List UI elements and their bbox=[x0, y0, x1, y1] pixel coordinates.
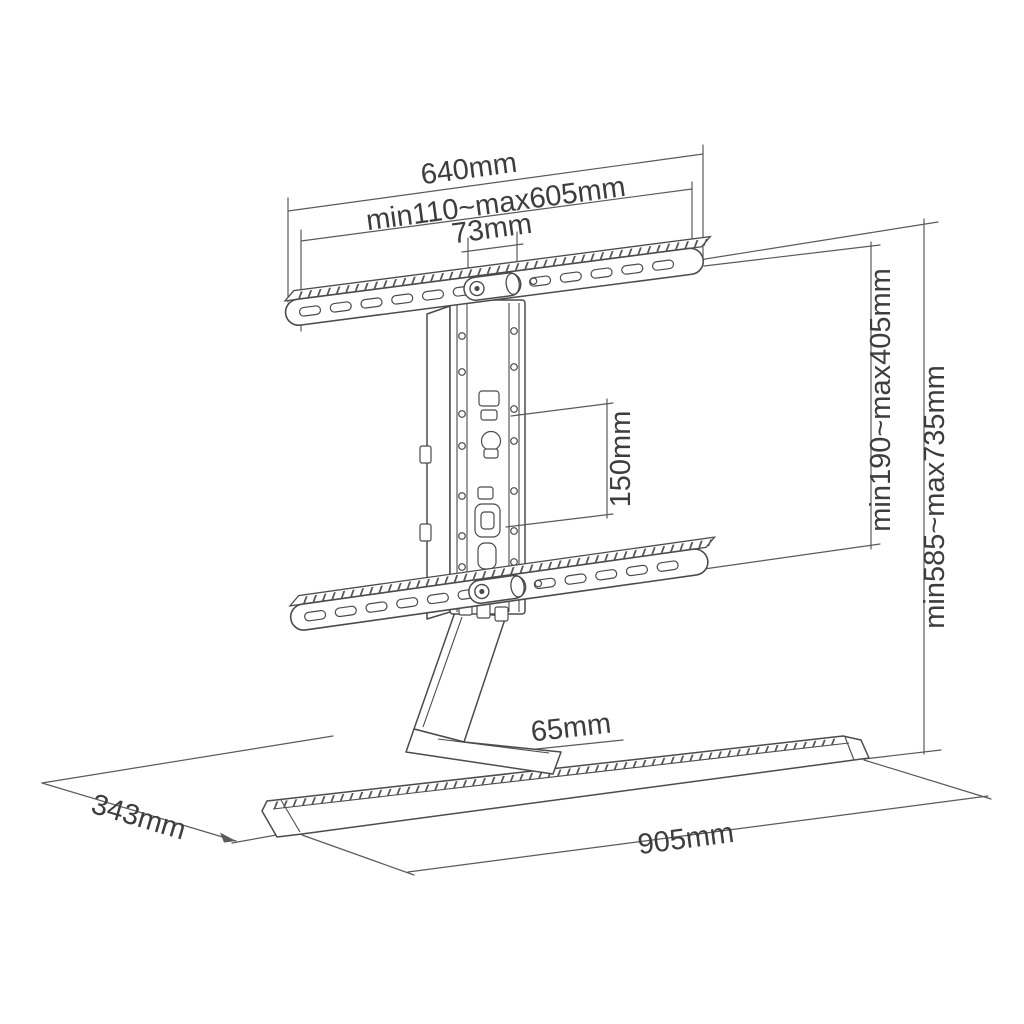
stand-neck bbox=[406, 612, 561, 774]
dim-label-base-depth: 343mm bbox=[88, 788, 190, 846]
tv-stand-dimension-diagram: 640mm min110~max605mm 73mm min190~max405… bbox=[0, 0, 1024, 1024]
base-bar bbox=[262, 736, 869, 837]
dim-label-hole-pitch: 150mm bbox=[605, 411, 637, 508]
dim-label-overall-height-range: min585~max735mm bbox=[919, 365, 951, 629]
dim-label-top-bracket-width: 640mm bbox=[419, 147, 519, 192]
arrowhead-base-depth bbox=[220, 833, 236, 843]
dimension-base-thickness: 65mm bbox=[527, 708, 623, 750]
dimension-overall-height-range: min585~max735mm bbox=[699, 219, 951, 759]
dimension-bracket-height-range: min190~max405mm bbox=[704, 242, 897, 569]
dim-label-bracket-height-range: min190~max405mm bbox=[865, 268, 897, 532]
diagram-canvas: 640mm min110~max605mm 73mm min190~max405… bbox=[0, 0, 1024, 1024]
dim-label-base-width: 905mm bbox=[636, 817, 736, 861]
